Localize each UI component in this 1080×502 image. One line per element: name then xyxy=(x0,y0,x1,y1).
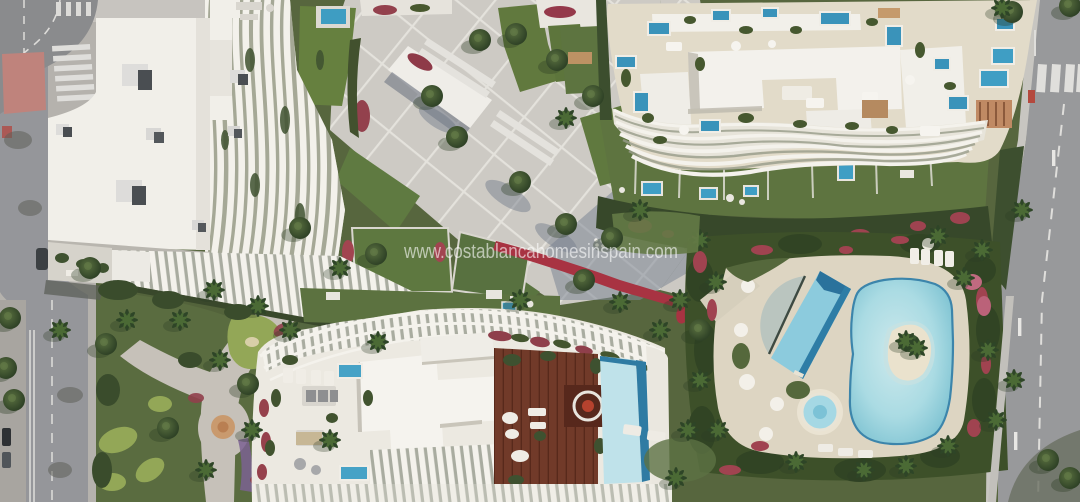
svg-text:www.costablancahomesinspain.co: www.costablancahomesinspain.com xyxy=(403,241,678,263)
